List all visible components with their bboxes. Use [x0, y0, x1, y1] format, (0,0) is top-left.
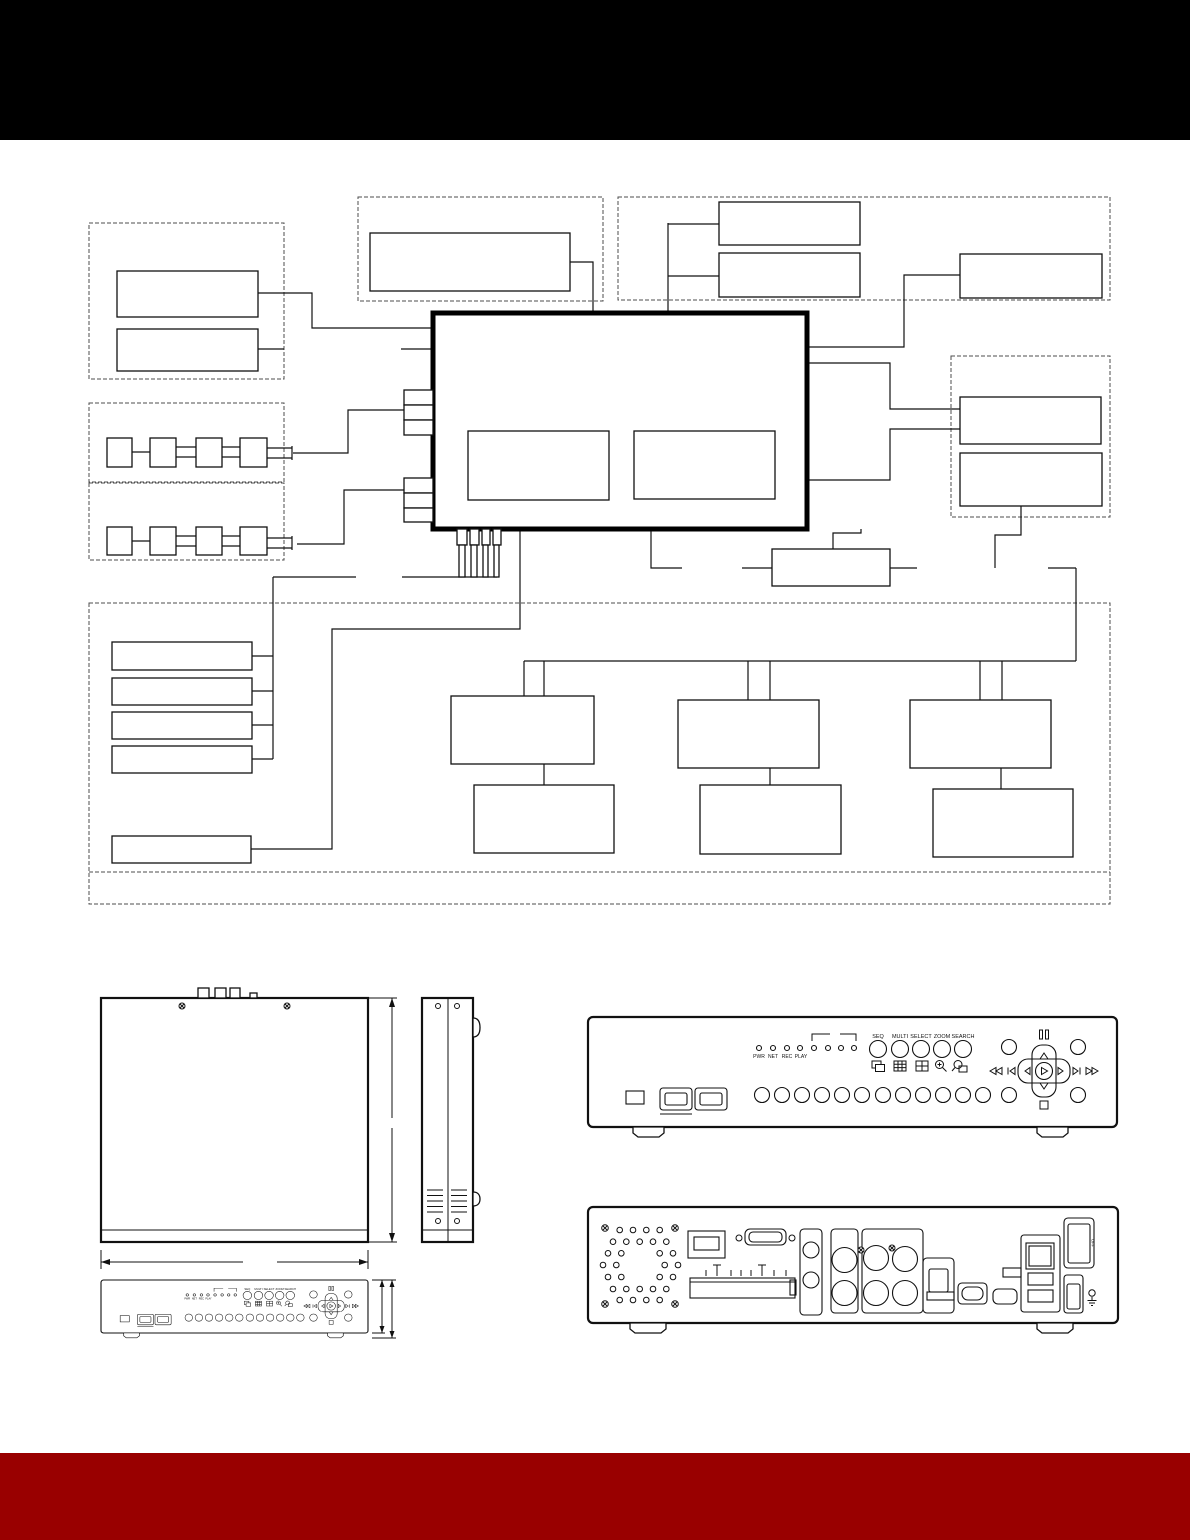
dimension-line [101, 1250, 368, 1269]
rear-connector-bump [250, 993, 257, 998]
pin-header [457, 529, 501, 577]
diagram-box [960, 254, 1102, 298]
input-chain [107, 438, 267, 467]
input-chain [107, 527, 267, 555]
rear-connector-bump [215, 988, 226, 998]
rear-connector-bump [198, 988, 209, 998]
diagram-box [468, 431, 609, 500]
front-panel-section [112, 642, 252, 863]
diagram-box [719, 202, 860, 245]
front-panel-large [588, 1017, 1117, 1137]
diagram-box [960, 453, 1102, 506]
panel-foot [1037, 1323, 1073, 1333]
diagram-box [117, 271, 258, 317]
diagram-box [772, 549, 890, 586]
block-diagram [89, 197, 1110, 904]
top-view-drawing [101, 988, 397, 1269]
power-switch-label: OFF [1091, 1239, 1096, 1248]
rear-panel-drawing: OFF [588, 1207, 1118, 1333]
chassis-outline [101, 998, 368, 1242]
manual-page: PWR NET REC PLAY SEQ MULTI SELECT ZOOM S… [0, 0, 1190, 1540]
rear-connector-bump [230, 988, 240, 998]
front-panel-small [101, 1280, 368, 1338]
dimension-line [368, 998, 397, 1242]
diagram-box [634, 431, 775, 499]
side-tab [473, 1018, 480, 1037]
panel-foot [630, 1323, 666, 1333]
diagram-box [117, 329, 258, 371]
diagram-box [960, 397, 1101, 444]
side-view-drawing [422, 998, 480, 1242]
page-canvas: PWR NET REC PLAY SEQ MULTI SELECT ZOOM S… [0, 0, 1190, 1540]
connector-stack [404, 390, 433, 522]
front-view-dimensions [372, 1280, 396, 1338]
side-tab [473, 1192, 480, 1206]
diagram-box [719, 253, 860, 297]
diagram-box [370, 233, 570, 291]
